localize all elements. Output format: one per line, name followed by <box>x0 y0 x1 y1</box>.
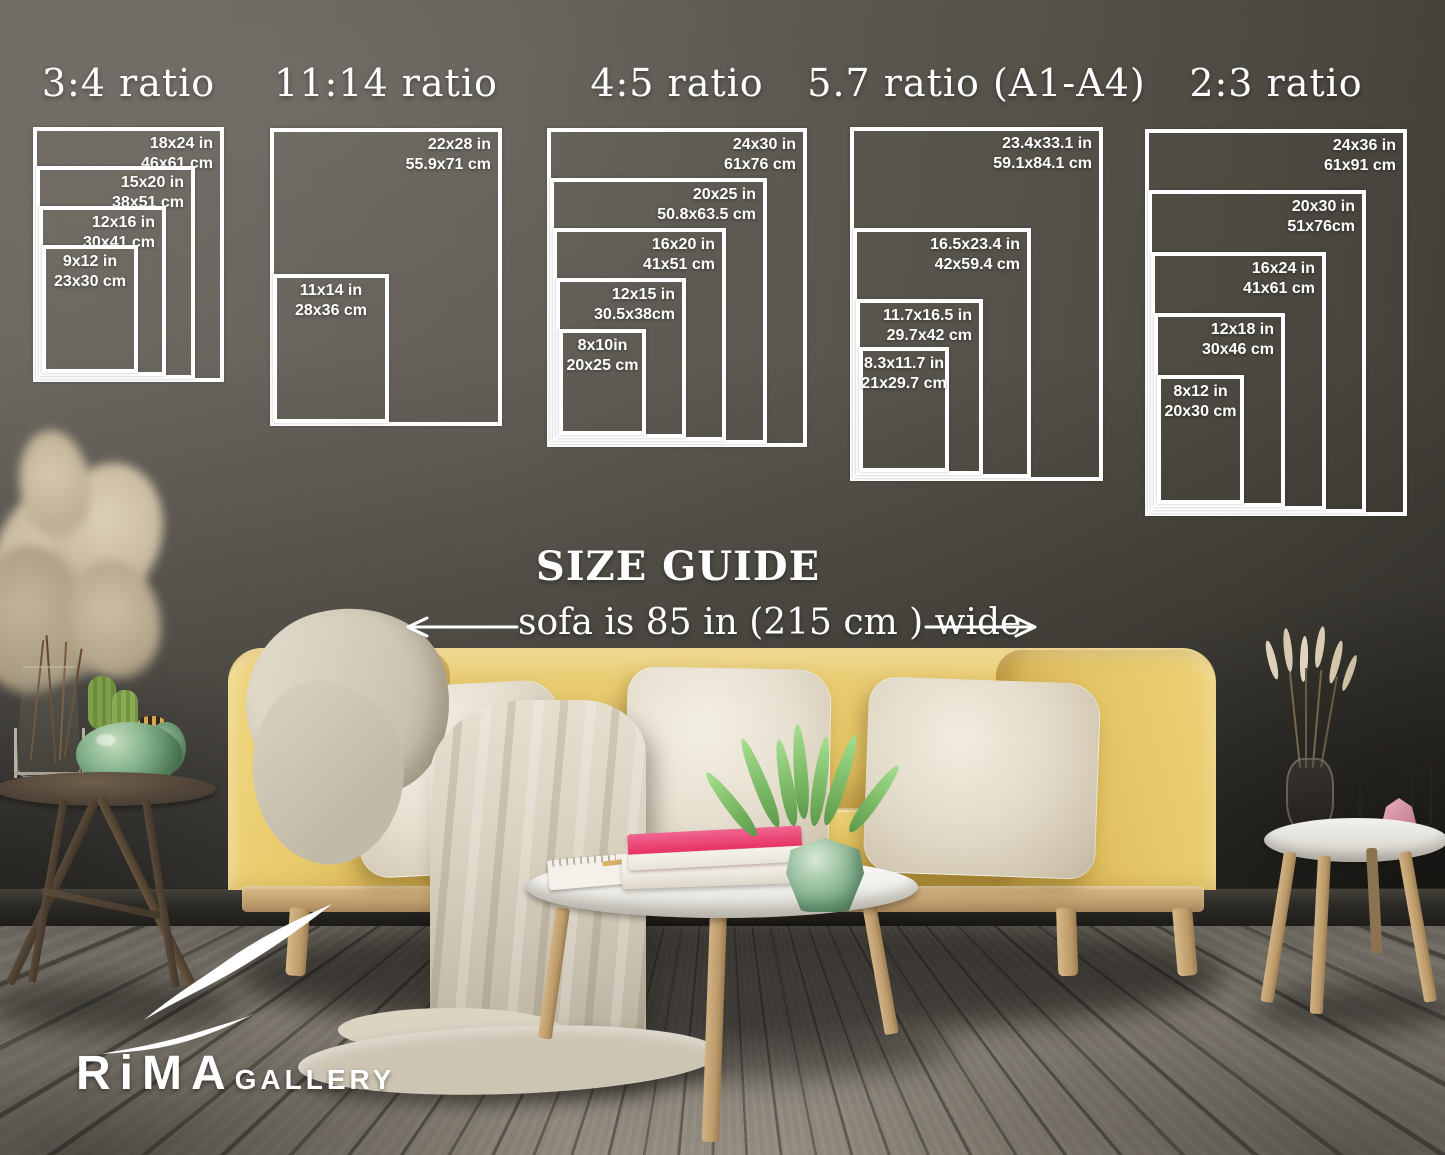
logo-suffix-text: GALLERY <box>235 1066 396 1094</box>
size-label: 22x28 in55.9x71 cm <box>270 135 491 176</box>
ratio-group-title: 3:4 ratio <box>42 62 215 106</box>
size-label-cm: 28x36 cm <box>273 301 389 321</box>
size-label-inches: 22x28 in <box>270 135 491 155</box>
size-label: 11x14 in28x36 cm <box>273 281 389 322</box>
ratio-group-title: 2:3 ratio <box>1189 62 1362 106</box>
sofa-width-note: sofa is 85 in (215 cm ) wide <box>518 601 918 644</box>
size-label: 8x12 in20x30 cm <box>1157 382 1244 423</box>
size-label-cm: 55.9x71 cm <box>270 155 491 175</box>
size-label-cm: 51x76cm <box>1148 217 1355 237</box>
size-label-cm: 23x30 cm <box>42 272 138 292</box>
size-label-inches: 8.3x11.7 in <box>859 354 949 374</box>
size-label: 20x25 in50.8x63.5 cm <box>550 185 756 226</box>
size-label: 11.7x16.5 in29.7x42 cm <box>856 306 972 347</box>
size-label-cm: 30.5x38cm <box>556 305 675 325</box>
size-label: 16x24 in41x61 cm <box>1151 259 1315 300</box>
size-label-inches: 16x24 in <box>1151 259 1315 279</box>
size-label: 12x18 in30x46 cm <box>1154 320 1274 361</box>
size-label-cm: 42x59.4 cm <box>853 255 1020 275</box>
size-label-inches: 16.5x23.4 in <box>853 235 1020 255</box>
size-label-cm: 61x91 cm <box>1145 156 1396 176</box>
size-label-inches: 18x24 in <box>33 134 213 154</box>
size-label-inches: 11x14 in <box>273 281 389 301</box>
size-guide-heading: SIZE GUIDE <box>536 545 820 589</box>
size-label: 8.3x11.7 in21x29.7 cm <box>859 354 949 395</box>
size-label: 16.5x23.4 in42x59.4 cm <box>853 235 1020 276</box>
size-label-cm: 21x29.7 cm <box>859 374 949 394</box>
size-label-inches: 12x16 in <box>39 213 155 233</box>
size-label: 9x12 in23x30 cm <box>42 252 138 293</box>
size-label-inches: 8x12 in <box>1157 382 1244 402</box>
size-label: 24x36 in61x91 cm <box>1145 136 1396 177</box>
size-label-cm: 20x25 cm <box>559 356 646 376</box>
size-label-cm: 61x76 cm <box>547 155 796 175</box>
size-label-inches: 20x25 in <box>550 185 756 205</box>
size-label-inches: 16x20 in <box>553 235 715 255</box>
size-label: 16x20 in41x51 cm <box>553 235 715 276</box>
size-label-cm: 30x46 cm <box>1154 340 1274 360</box>
size-label-inches: 8x10in <box>559 336 646 356</box>
logo: RiMA GALLERY <box>76 1050 395 1098</box>
size-label-inches: 12x18 in <box>1154 320 1274 340</box>
size-label-inches: 20x30 in <box>1148 197 1355 217</box>
size-label-cm: 29.7x42 cm <box>856 326 972 346</box>
size-label-inches: 15x20 in <box>36 173 184 193</box>
size-label-cm: 50.8x63.5 cm <box>550 205 756 225</box>
size-label-cm: 20x30 cm <box>1157 402 1244 422</box>
ratio-group-title: 11:14 ratio <box>274 62 498 106</box>
logo-swoosh-icon <box>86 896 346 1066</box>
size-guide-poster: 3:4 ratio18x24 in46x61 cm15x20 in38x51 c… <box>0 0 1445 1155</box>
logo-brand-text: RiMA <box>76 1050 235 1098</box>
size-label-inches: 12x15 in <box>556 285 675 305</box>
size-label-cm: 41x51 cm <box>553 255 715 275</box>
size-label: 12x15 in30.5x38cm <box>556 285 675 326</box>
size-label-cm: 59.1x84.1 cm <box>850 154 1092 174</box>
size-label-inches: 23.4x33.1 in <box>850 134 1092 154</box>
size-label-inches: 24x30 in <box>547 135 796 155</box>
size-label: 20x30 in51x76cm <box>1148 197 1355 238</box>
size-label-inches: 24x36 in <box>1145 136 1396 156</box>
size-label-cm: 41x61 cm <box>1151 279 1315 299</box>
size-label: 8x10in20x25 cm <box>559 336 646 377</box>
size-label-inches: 11.7x16.5 in <box>856 306 972 326</box>
size-label-inches: 9x12 in <box>42 252 138 272</box>
ratio-group-title: 4:5 ratio <box>590 62 763 106</box>
right-arrow-icon <box>924 614 1040 640</box>
size-label: 24x30 in61x76 cm <box>547 135 796 176</box>
size-label: 23.4x33.1 in59.1x84.1 cm <box>850 134 1092 175</box>
ratio-group-title: 5.7 ratio (A1-A4) <box>807 62 1145 106</box>
left-arrow-icon <box>403 614 519 640</box>
